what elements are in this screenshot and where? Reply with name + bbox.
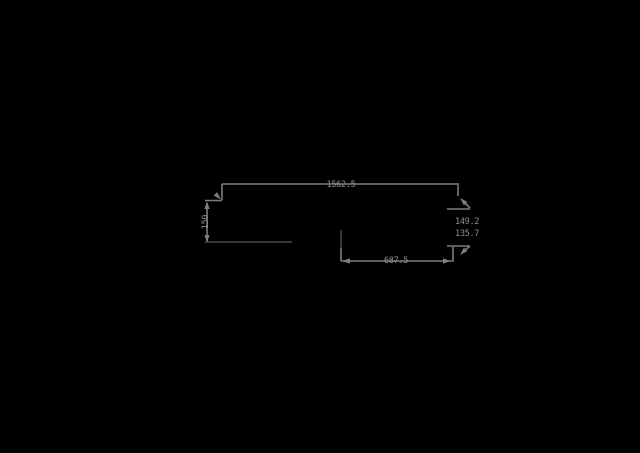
right-upper-dimension-label: 149.2 [455, 217, 479, 227]
left-dimension-label: 150 [201, 215, 211, 230]
bottom-dimension-label: 687.5 [384, 256, 408, 266]
top-dimension-label: 1562.5 [327, 180, 356, 190]
arrow-left-icon-bottom-dim [342, 258, 350, 263]
arrow-down-icon-left-dim [204, 235, 209, 243]
right-lower-dimension-label: 135.7 [455, 229, 479, 239]
drawing-canvas: 1562.5 150 687.5 149.2 135.7 [0, 0, 640, 453]
arrow-up-icon-left-dim [204, 202, 209, 210]
arrow-right-icon-bottom-dim [443, 258, 451, 263]
dimension-drawing: 1562.5 150 687.5 149.2 135.7 [0, 0, 640, 453]
corner-arrow-icon-top-left [214, 192, 221, 199]
